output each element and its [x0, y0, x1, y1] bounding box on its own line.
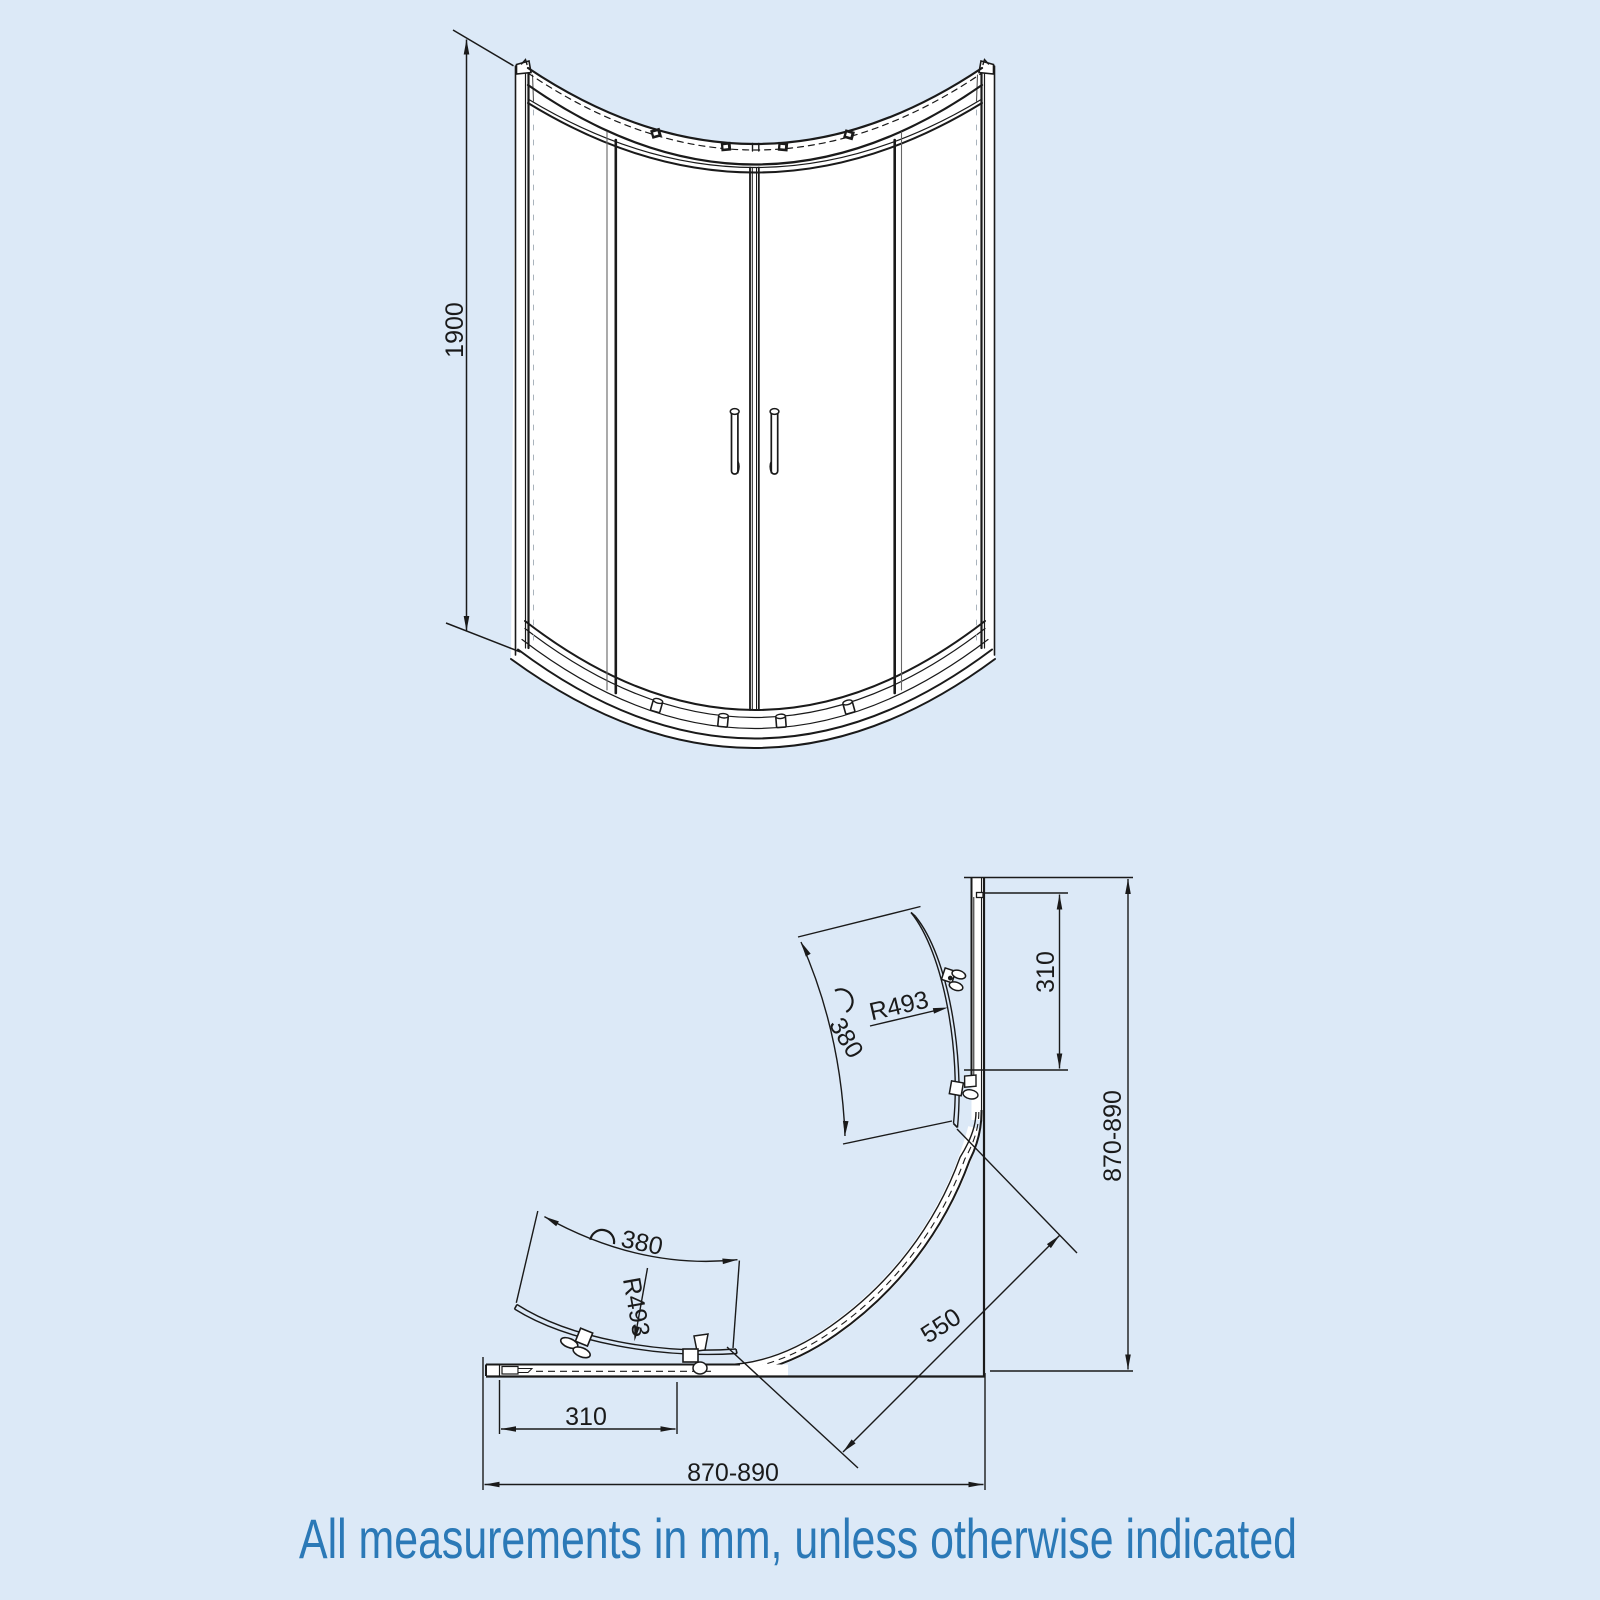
- svg-text:310: 310: [565, 1403, 607, 1431]
- svg-text:870-890: 870-890: [1099, 1090, 1127, 1182]
- svg-text:1900: 1900: [441, 302, 469, 358]
- svg-text:All measurements in mm, unless: All measurements in mm, unless otherwise…: [299, 1507, 1297, 1570]
- svg-text:870-890: 870-890: [687, 1459, 779, 1487]
- svg-text:310: 310: [1032, 951, 1060, 993]
